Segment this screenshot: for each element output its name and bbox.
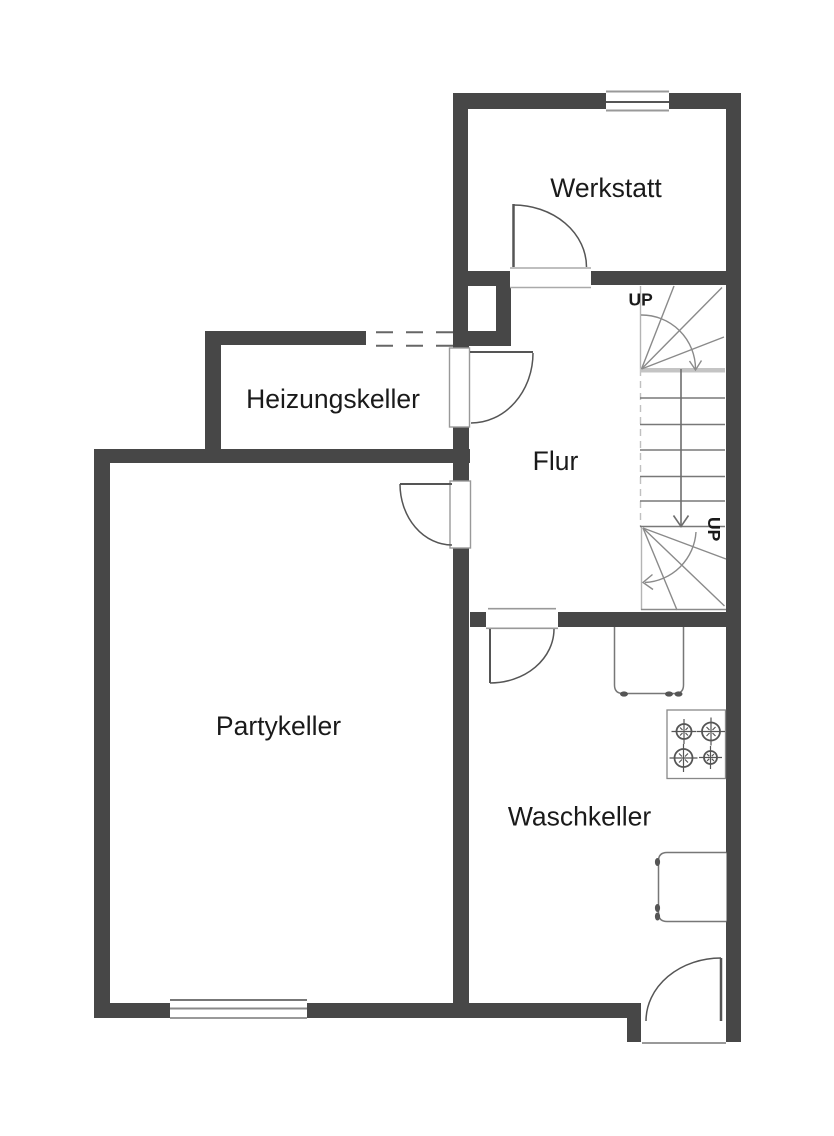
svg-text:Werkstatt: Werkstatt: [550, 173, 662, 203]
svg-text:UP: UP: [704, 517, 724, 542]
svg-text:UP: UP: [629, 290, 654, 310]
svg-text:Waschkeller: Waschkeller: [508, 802, 652, 832]
svg-text:Heizungskeller: Heizungskeller: [246, 384, 420, 414]
svg-text:Partykeller: Partykeller: [216, 711, 341, 741]
svg-text:Flur: Flur: [533, 446, 579, 476]
